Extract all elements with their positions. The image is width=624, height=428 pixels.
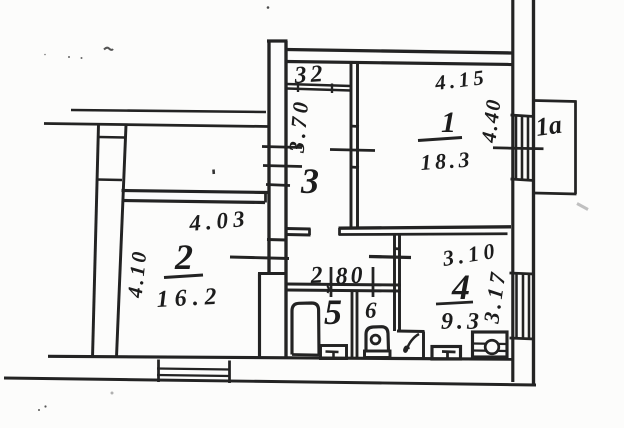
svg-text:1: 1 — [441, 106, 456, 139]
svg-text:4.40: 4.40 — [476, 96, 505, 144]
svg-text:2: 2 — [309, 262, 323, 289]
svg-text:4.15: 4.15 — [433, 65, 489, 95]
svg-text:3.70: 3.70 — [284, 97, 314, 154]
svg-text:4: 4 — [451, 267, 470, 307]
svg-text:18.3: 18.3 — [420, 146, 474, 175]
svg-text:4.10: 4.10 — [122, 248, 151, 300]
svg-text:3.17: 3.17 — [478, 267, 510, 325]
svg-text:2: 2 — [174, 237, 193, 277]
svg-text:3: 3 — [300, 161, 319, 201]
svg-text:80: 80 — [335, 262, 366, 290]
svg-text:32: 32 — [293, 61, 328, 89]
svg-text:16.2: 16.2 — [156, 284, 223, 313]
svg-text:3.10: 3.10 — [440, 237, 501, 271]
svg-text:4.03: 4.03 — [187, 206, 250, 236]
svg-text:1a: 1a — [534, 110, 564, 142]
svg-text:9.3: 9.3 — [441, 309, 483, 335]
svg-text:6: 6 — [365, 298, 377, 323]
svg-text:5: 5 — [324, 292, 342, 332]
